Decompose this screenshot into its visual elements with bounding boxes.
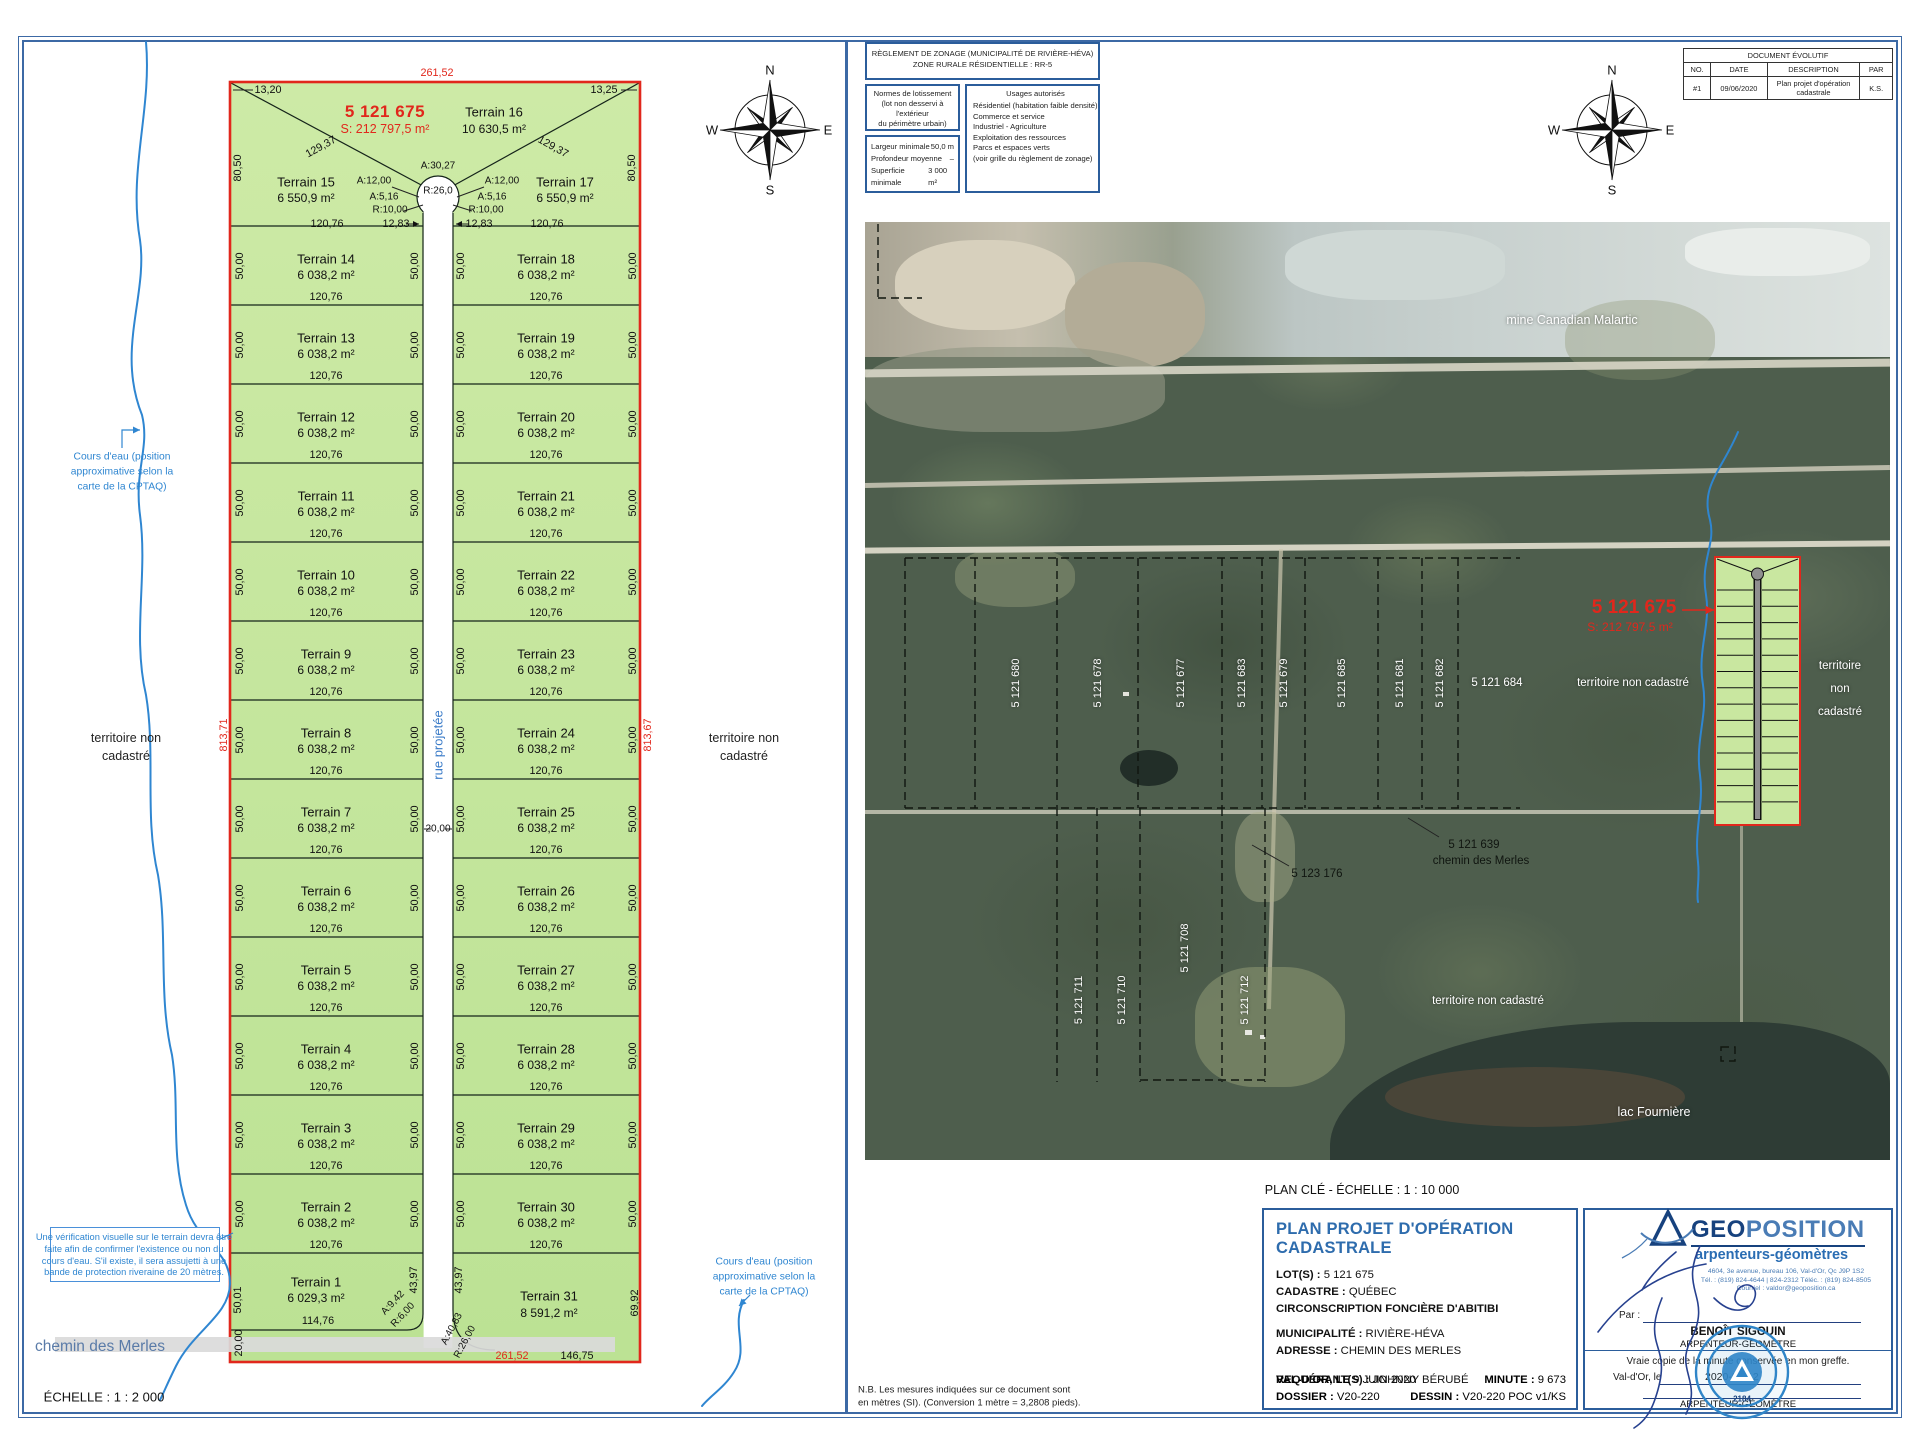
verification-note-box [50, 1227, 220, 1282]
aerial-photo [865, 222, 1890, 1160]
usages-box: Usages autorisés Résidentiel (habitation… [965, 84, 1100, 193]
certify-line: Vraie copie de la minute conservée en mo… [1585, 1356, 1891, 1367]
lot-line: LOT(S) : 5 121 675 [1276, 1267, 1564, 1284]
par-label: Par : [1619, 1310, 1640, 1321]
date-line [1659, 1384, 1861, 1385]
zoning-box: RÈGLEMENT DE ZONAGE (MUNICIPALITÉ DE RIV… [865, 42, 1100, 193]
surveyor-title: ARPENTEUR-GÉOMÈTRE [1585, 1339, 1891, 1350]
cadastre-line: CADASTRE : QUÉBEC [1276, 1284, 1564, 1301]
geoposition-subtitle: arpenteurs-géomètres [1695, 1247, 1848, 1263]
geoposition-logo-text: GEOPOSITION [1691, 1216, 1865, 1247]
normes-values: Largeur minimale50,0 m Profondeur moyenn… [865, 135, 960, 193]
date-minute-line: VAL-D'OR, LE 9 JUIN 2020 MINUTE : 9 673 [1276, 1374, 1566, 1386]
normes-header: Normes de lotissement (lot non desservi … [865, 84, 960, 131]
adresse-line: ADRESSE : CHEMIN DES MERLES [1276, 1343, 1564, 1360]
panel-divider [845, 40, 848, 1412]
stamp-date: 2020-06-12 [1705, 1371, 1759, 1383]
road [865, 465, 1890, 488]
signature-line [1643, 1322, 1861, 1323]
title-block: PLAN PROJET D'OPÉRATION CADASTRALE LOT(S… [1262, 1208, 1578, 1410]
dossier-dessin-line: DOSSIER : V20-220 DESSIN : V20-220 POC v… [1276, 1391, 1566, 1403]
circonscription-line: CIRCONSCRIPTION FONCIÈRE D'ABITIBI [1276, 1301, 1564, 1318]
road-chemin [865, 540, 1890, 553]
zoning-title: RÈGLEMENT DE ZONAGE (MUNICIPALITÉ DE RIV… [865, 42, 1100, 80]
survey-plan-sheet: RÈGLEMENT DE ZONAGE (MUNICIPALITÉ DE RIV… [0, 0, 1920, 1437]
surveyor-block: GEOPOSITION arpenteurs-géomètres 4604, 3… [1583, 1208, 1893, 1410]
surveyor-name: BENOÎT SIGOUIN [1585, 1326, 1891, 1338]
block-divider [1585, 1350, 1891, 1351]
trail [1267, 549, 1283, 1009]
doc-table-row: #1 09/06/2020 Plan projet d'opération ca… [1684, 77, 1893, 100]
document-evolutif-table: DOCUMENT ÉVOLUTIF NO. DATE DESCRIPTION P… [1683, 48, 1893, 100]
document-title: PLAN PROJET D'OPÉRATION CADASTRALE [1276, 1220, 1564, 1258]
pond [1120, 750, 1178, 786]
municipalite-line: MUNICIPALITÉ : RIVIÈRE-HÉVA [1276, 1326, 1564, 1343]
geoposition-address: 4604, 3e avenue, bureau 106, Val-d'Or, Q… [1681, 1268, 1891, 1294]
doc-table-title: DOCUMENT ÉVOLUTIF [1684, 49, 1893, 63]
bottom-title: ARPENTEUR-GÉOMÈTRE [1585, 1399, 1891, 1410]
place-label: Val-d'Or, le [1613, 1372, 1661, 1383]
road [865, 810, 1745, 814]
